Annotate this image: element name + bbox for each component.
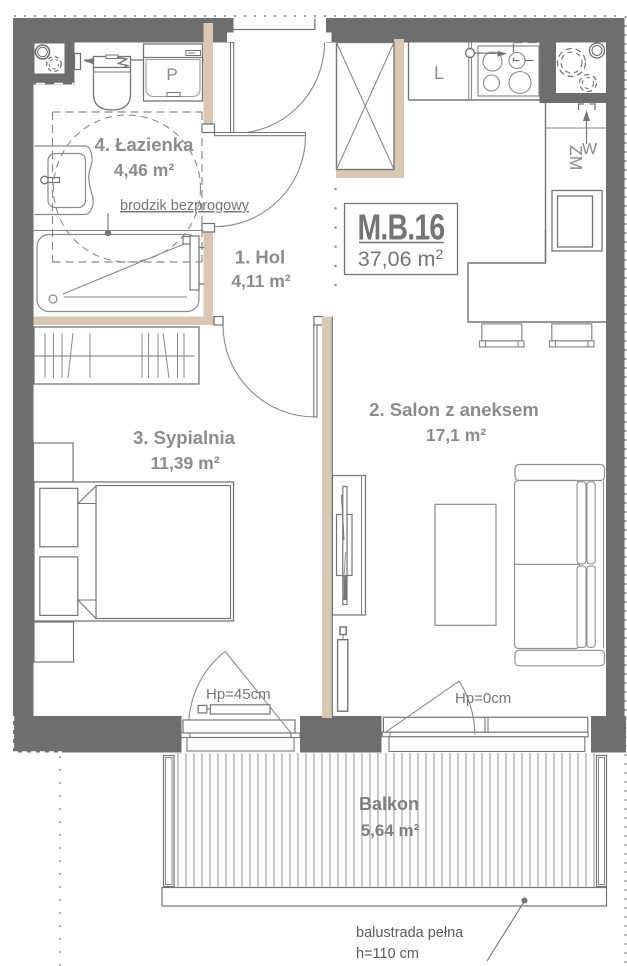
svg-text:2. Salon z aneksem: 2. Salon z aneksem	[369, 399, 539, 420]
svg-text:Balkon: Balkon	[359, 794, 419, 814]
svg-text:brodzik bezprogowy: brodzik bezprogowy	[120, 198, 250, 214]
svg-text:3. Sypialnia: 3. Sypialnia	[133, 427, 236, 448]
svg-text:17,1 m²: 17,1 m²	[426, 425, 486, 445]
svg-text:W: W	[582, 141, 598, 158]
svg-text:1. Hol: 1. Hol	[235, 247, 285, 268]
svg-text:M.B.16: M.B.16	[358, 207, 445, 247]
svg-text:P: P	[166, 65, 177, 84]
svg-text:Hp=45cm: Hp=45cm	[206, 686, 271, 703]
svg-text:h=110 cm: h=110 cm	[356, 946, 419, 962]
svg-text:4. Łazienka: 4. Łazienka	[95, 134, 194, 155]
svg-text:5,64 m²: 5,64 m²	[361, 821, 420, 840]
svg-text:L: L	[434, 63, 444, 83]
svg-text:4,46 m²: 4,46 m²	[114, 160, 174, 180]
svg-text:4,11 m²: 4,11 m²	[231, 271, 291, 291]
svg-text:37,06 m2: 37,06 m2	[358, 246, 444, 271]
svg-text:11,39 m²: 11,39 m²	[150, 453, 219, 473]
svg-text:balustrada pełna: balustrada pełna	[356, 925, 464, 941]
svg-text:Hp=0cm: Hp=0cm	[455, 690, 511, 707]
